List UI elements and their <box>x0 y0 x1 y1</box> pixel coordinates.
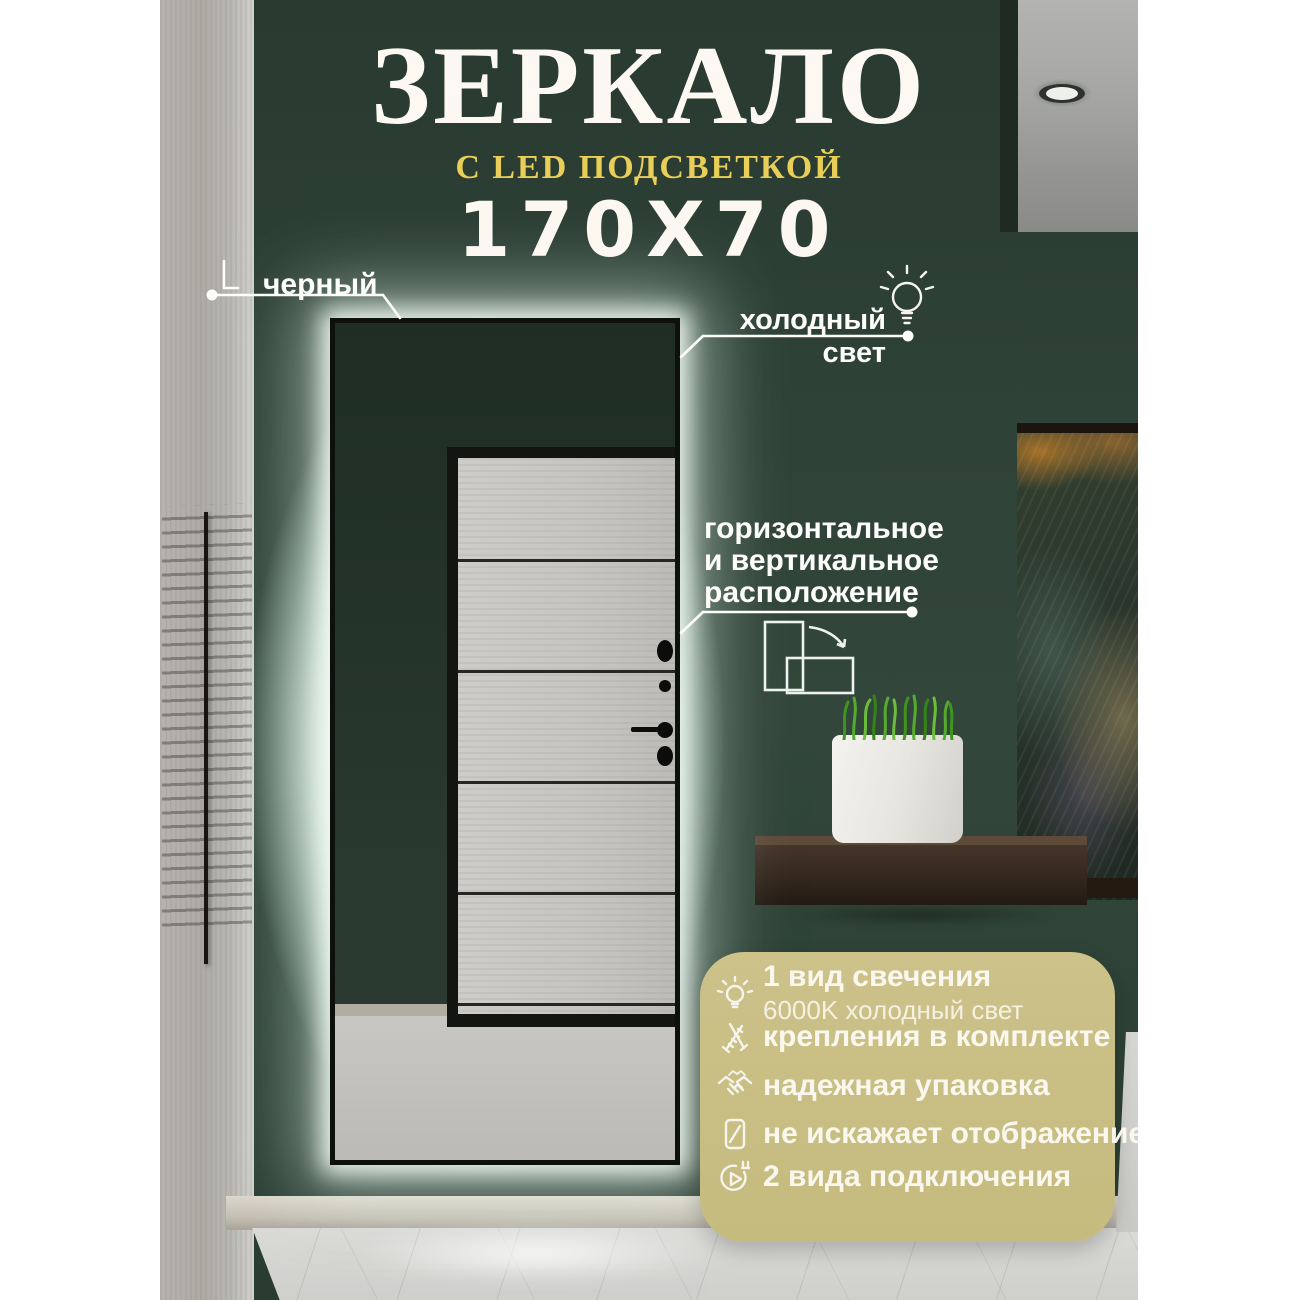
door-groove <box>458 892 675 895</box>
product-size: 170X70 <box>160 191 1138 269</box>
feature-text: 1 вид свечения 6000K холодный свет <box>763 960 1023 1026</box>
door-groove <box>458 670 675 673</box>
features-panel: 1 вид свечения 6000K холодный свет крепл… <box>700 952 1115 1242</box>
feature-row: крепления в комплекте <box>716 1018 1110 1056</box>
mirror-reflection <box>335 323 675 1160</box>
cold-light-label: холодный свет <box>698 304 886 370</box>
handshake-icon <box>716 1067 754 1105</box>
door-lock <box>657 746 673 766</box>
orientation-label: горизонтальное и вертикальное расположен… <box>704 513 944 609</box>
led-floor-glow <box>300 1220 770 1286</box>
led-mirror <box>330 318 680 1165</box>
orientation-line-2: и вертикальное <box>704 545 944 577</box>
door-groove <box>458 781 675 784</box>
feature-label: крепления в комплекте <box>763 1020 1110 1054</box>
product-subtitle: С LED ПОДСВЕТКОЙ <box>160 149 1138 187</box>
lightbulb-icon <box>876 261 938 335</box>
door-handle-base <box>657 722 673 738</box>
mirror-icon <box>716 1115 754 1153</box>
rotate-icon <box>765 622 853 693</box>
room-photo: ЗЕРКАЛО С LED ПОДСВЕТКОЙ 170X70 черный х… <box>160 0 1138 1300</box>
lightbulb-icon <box>716 974 754 1012</box>
artwork-frame-top <box>1017 423 1138 433</box>
plug-icon <box>716 1158 754 1196</box>
floating-shelf <box>755 845 1087 905</box>
feature-row: 2 вида подключения <box>716 1158 1071 1196</box>
feature-label: надежная упаковка <box>763 1069 1050 1103</box>
feature-row: 1 вид свечения 6000K холодный свет <box>716 960 1023 1026</box>
frame-color-label: черный <box>263 268 378 302</box>
shelf-shadow <box>752 903 1090 927</box>
feature-row: надежная упаковка <box>716 1067 1050 1105</box>
tropical-leaves-artwork <box>1017 423 1138 900</box>
feature-label: 1 вид свечения <box>763 960 1023 994</box>
feature-label: не искажает отображение <box>763 1117 1138 1151</box>
reflected-floor <box>335 1013 675 1160</box>
door-groove <box>458 1003 675 1006</box>
wall-rail <box>204 512 208 964</box>
screws-icon <box>716 1018 754 1056</box>
door-knob <box>657 640 673 662</box>
white-planter <box>832 735 963 843</box>
reflected-baseboard <box>335 1004 447 1016</box>
feature-label: 2 вида подключения <box>763 1160 1071 1194</box>
orientation-line-1: горизонтальное <box>704 513 944 545</box>
feature-row: не искажает отображение <box>716 1115 1138 1153</box>
reflected-door <box>458 458 675 1014</box>
product-title: ЗЕРКАЛО <box>160 26 1138 146</box>
grass-plant <box>836 692 960 740</box>
door-peephole <box>659 680 671 692</box>
product-card: ЗЕРКАЛО С LED ПОДСВЕТКОЙ 170X70 черный х… <box>0 0 1300 1300</box>
door-groove <box>458 559 675 562</box>
orientation-line-3: расположение <box>704 577 944 609</box>
